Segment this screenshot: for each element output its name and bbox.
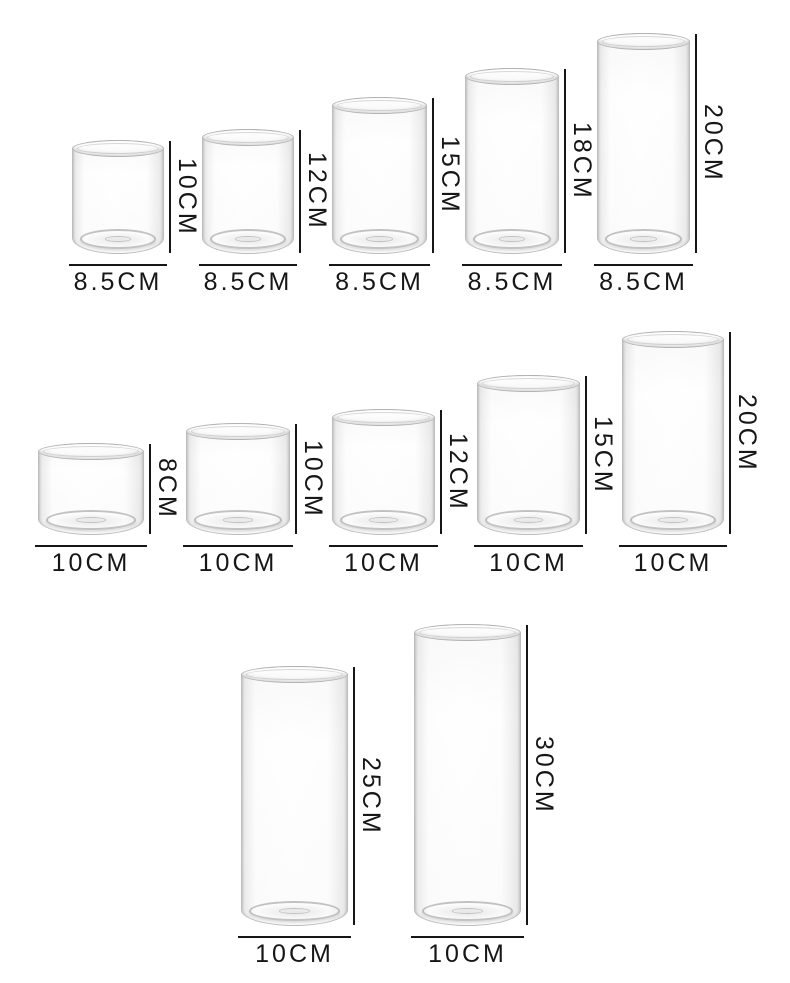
glass-bottom xyxy=(46,510,136,530)
diameter-dimension-line xyxy=(35,545,147,547)
height-label: 20CM xyxy=(700,104,725,183)
glass-rim xyxy=(465,68,559,85)
diameter-label: 10CM xyxy=(255,941,334,967)
diameter-label: 10CM xyxy=(428,941,507,967)
glass-cylinder: 10CM xyxy=(186,423,290,535)
glass-figure: 12CM 8.5CM xyxy=(202,129,294,295)
glass-bottom xyxy=(340,229,419,249)
diameter-label: 10CM xyxy=(344,550,423,576)
diameter-dimension-line xyxy=(329,264,430,266)
diameter-dimension-line xyxy=(594,264,693,266)
glass-bottom xyxy=(340,510,427,530)
glass-cylinder: 18CM xyxy=(465,68,559,254)
glass-bottom xyxy=(473,229,551,249)
glass-cylinder: 12CM xyxy=(332,409,435,535)
diameter-dimension-line xyxy=(462,264,562,266)
glass-bottom xyxy=(422,901,513,921)
height-label: 15CM xyxy=(437,136,462,215)
height-label: 8CM xyxy=(154,458,179,520)
diameter-label: 8.5CM xyxy=(599,269,688,295)
diameter-label: 10CM xyxy=(52,550,131,576)
diameter-label: 8.5CM xyxy=(468,269,557,295)
size-row-tall: 25CM 10CM 30CM 10CM xyxy=(0,624,790,967)
glass-cylinder: 20CM xyxy=(622,331,724,535)
height-dimension: 10CM xyxy=(169,141,199,253)
diameter-label: 10CM xyxy=(199,550,278,576)
height-dimension: 15CM xyxy=(585,376,615,534)
diameter-dimension-line xyxy=(238,936,351,938)
height-label: 18CM xyxy=(569,122,594,201)
height-dimension-line xyxy=(526,625,528,925)
diameter-dimension-line xyxy=(619,545,727,547)
glass-figure: 12CM 10CM xyxy=(332,409,435,576)
diameter-dimension-line xyxy=(329,545,438,547)
height-dimension: 20CM xyxy=(729,332,759,534)
glass-bottom xyxy=(605,229,682,249)
glass-figure: 10CM 8.5CM xyxy=(72,140,164,295)
height-dimension-line xyxy=(299,130,301,253)
height-dimension: 30CM xyxy=(526,625,556,925)
height-dimension: 8CM xyxy=(149,444,179,534)
glass-figure: 15CM 10CM xyxy=(477,375,580,576)
glass-rim xyxy=(597,33,690,50)
glass-rim xyxy=(477,375,580,392)
height-dimension-line xyxy=(564,69,566,253)
height-label: 10CM xyxy=(174,158,199,237)
glass-rim xyxy=(414,624,521,641)
glass-rim xyxy=(186,423,290,440)
height-dimension-line xyxy=(353,667,355,925)
glass-cylinder: 15CM xyxy=(332,97,427,254)
glass-rim xyxy=(38,443,144,460)
glass-figure: 20CM 10CM xyxy=(622,331,724,576)
diameter-label: 8.5CM xyxy=(204,269,293,295)
glass-bottom xyxy=(210,229,286,249)
glass-bottom xyxy=(80,229,156,249)
glass-bottom xyxy=(194,510,282,530)
height-dimension: 20CM xyxy=(695,34,725,253)
diameter-dimension-line xyxy=(69,264,167,266)
height-dimension-line xyxy=(729,332,731,534)
height-label: 12CM xyxy=(445,433,470,512)
size-chart-canvas: 10CM 8.5CM 12CM 8.5CM xyxy=(0,0,790,983)
height-dimension-line xyxy=(585,376,587,534)
height-dimension: 25CM xyxy=(353,667,383,925)
diameter-label: 8.5CM xyxy=(335,269,424,295)
glass-rim xyxy=(241,666,348,683)
height-dimension: 15CM xyxy=(432,98,462,253)
height-label: 20CM xyxy=(734,394,759,473)
glass-rim xyxy=(72,140,164,157)
height-dimension-line xyxy=(149,444,151,534)
height-label: 10CM xyxy=(300,440,325,519)
glass-rim xyxy=(202,129,294,146)
glass-cylinder: 20CM xyxy=(597,33,690,254)
size-row-8-5cm: 10CM 8.5CM 12CM 8.5CM xyxy=(0,33,790,295)
height-label: 12CM xyxy=(304,152,329,231)
glass-figure: 25CM 10CM xyxy=(241,666,348,967)
glass-figure: 18CM 8.5CM xyxy=(465,68,559,295)
glass-figure: 30CM 10CM xyxy=(414,624,521,967)
height-dimension-line xyxy=(695,34,697,253)
height-label: 30CM xyxy=(531,736,556,815)
glass-figure: 20CM 8.5CM xyxy=(597,33,690,295)
diameter-dimension-line xyxy=(411,936,524,938)
diameter-label: 10CM xyxy=(489,550,568,576)
glass-rim xyxy=(332,97,427,114)
glass-figure: 15CM 8.5CM xyxy=(332,97,427,295)
height-dimension-line xyxy=(295,424,297,534)
height-dimension: 12CM xyxy=(440,410,470,534)
glass-cylinder: 12CM xyxy=(202,129,294,254)
glass-cylinder: 30CM xyxy=(414,624,521,926)
glass-cylinder: 8CM xyxy=(38,443,144,535)
glass-bottom xyxy=(485,510,572,530)
glass-bottom xyxy=(249,901,340,921)
glass-cylinder: 15CM xyxy=(477,375,580,535)
glass-figure: 8CM 10CM xyxy=(38,443,144,576)
diameter-dimension-line xyxy=(199,264,297,266)
diameter-dimension-line xyxy=(183,545,293,547)
glass-rim xyxy=(622,331,724,348)
diameter-dimension-line xyxy=(474,545,583,547)
glass-rim xyxy=(332,409,435,426)
height-label: 15CM xyxy=(590,416,615,495)
diameter-label: 8.5CM xyxy=(74,269,163,295)
height-dimension-line xyxy=(440,410,442,534)
height-label: 25CM xyxy=(358,757,383,836)
glass-cylinder: 25CM xyxy=(241,666,348,926)
height-dimension-line xyxy=(169,141,171,253)
height-dimension-line xyxy=(432,98,434,253)
diameter-label: 10CM xyxy=(634,550,713,576)
height-dimension: 10CM xyxy=(295,424,325,534)
size-row-10cm: 8CM 10CM 10CM 10CM xyxy=(0,331,790,576)
glass-bottom xyxy=(630,510,716,530)
height-dimension: 12CM xyxy=(299,130,329,253)
height-dimension: 18CM xyxy=(564,69,594,253)
glass-cylinder: 10CM xyxy=(72,140,164,254)
glass-figure: 10CM 10CM xyxy=(186,423,290,576)
